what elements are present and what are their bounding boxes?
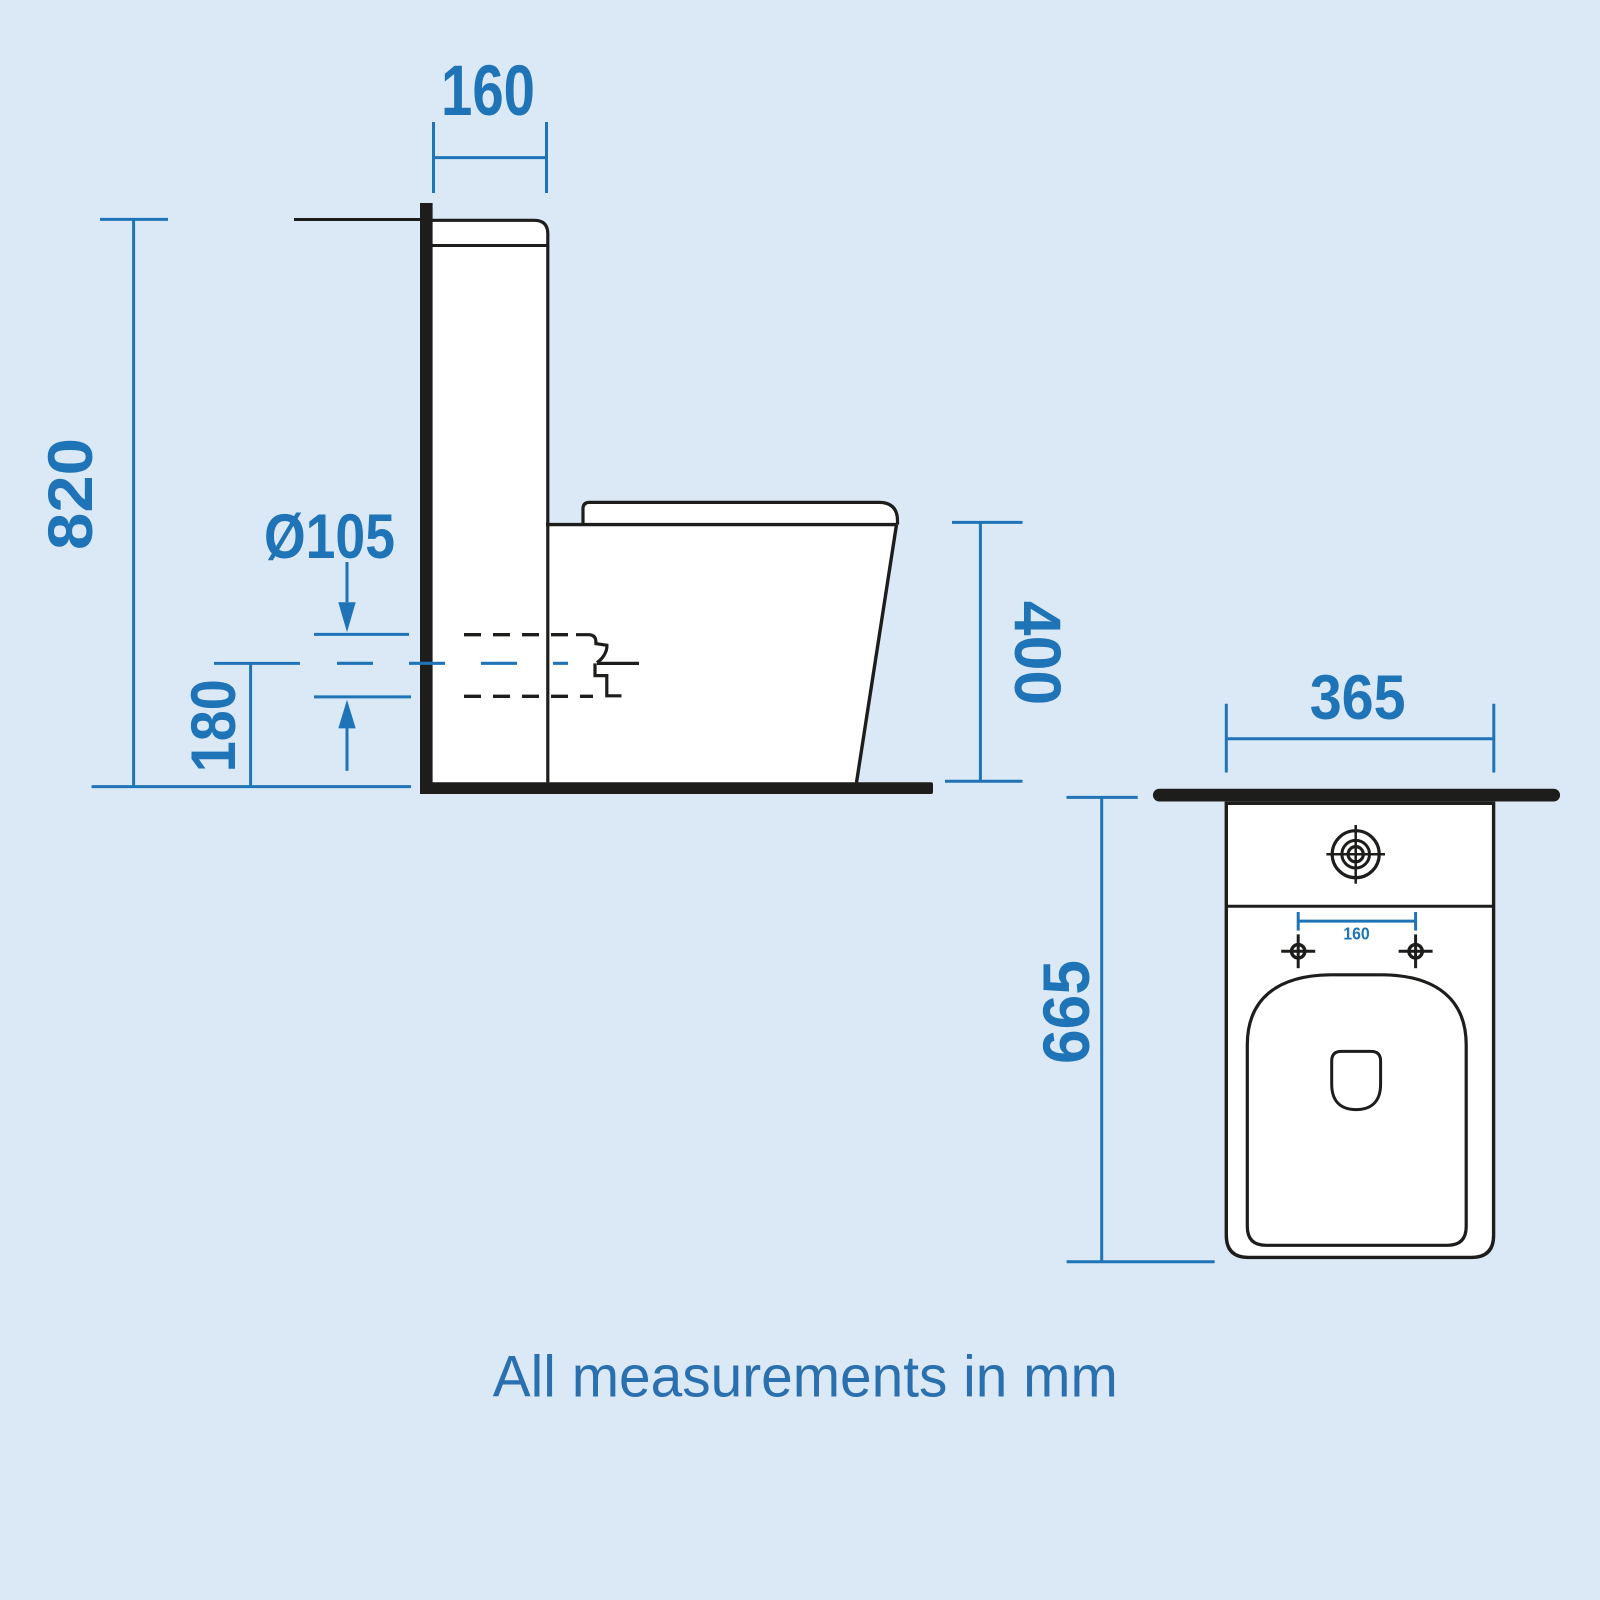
svg-text:820: 820 (36, 438, 106, 550)
svg-text:665: 665 (1029, 960, 1103, 1064)
svg-text:160: 160 (1343, 924, 1370, 944)
svg-text:160: 160 (441, 51, 535, 131)
svg-text:180: 180 (179, 679, 249, 772)
svg-text:365: 365 (1310, 663, 1406, 733)
svg-text:Ø105: Ø105 (264, 502, 395, 572)
svg-text:400: 400 (1001, 601, 1074, 706)
svg-text:All measurements in mm: All measurements in mm (493, 1345, 1118, 1410)
